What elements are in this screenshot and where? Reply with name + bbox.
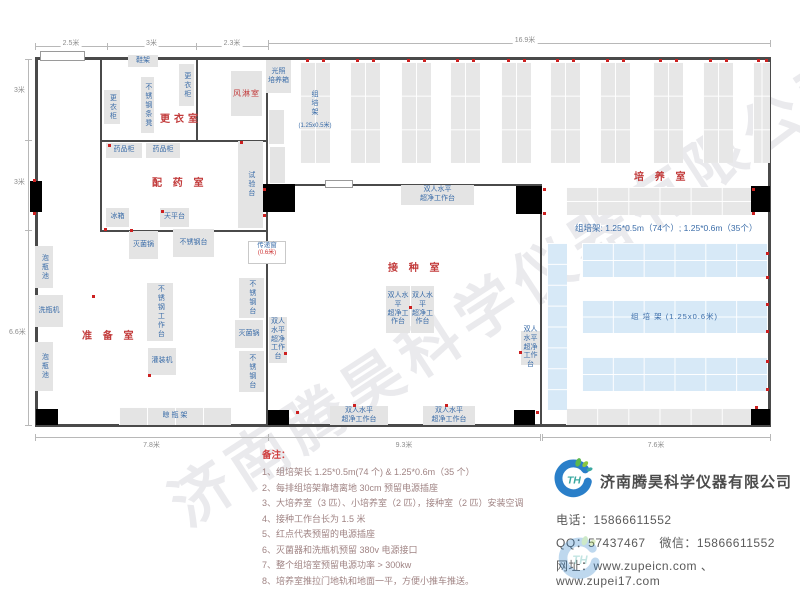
blue-culture-rack <box>582 357 767 391</box>
power-outlet-dot <box>407 59 410 62</box>
dim-label: 16.9米 <box>513 35 538 45</box>
dim-tick <box>25 140 32 141</box>
culture-rack <box>401 62 431 163</box>
room-label: 准 备 室 <box>82 327 138 342</box>
room-label: 接 种 室 <box>388 259 444 274</box>
equipment-box <box>270 147 285 183</box>
dim-tick <box>196 43 197 50</box>
door-block <box>516 186 542 214</box>
dim-tick <box>542 434 543 441</box>
note-item: 1、组培架长 1.25*0.5m(74 个) & 1.25*0.6m（35 个） <box>262 465 542 481</box>
equipment-box: 双人水平 超净工作台 <box>401 185 474 205</box>
door-block <box>30 181 42 212</box>
power-outlet-dot <box>445 404 448 407</box>
notes-block: 备注： 1、组培架长 1.25*0.5m(74 个) & 1.25*0.6m（3… <box>262 447 542 589</box>
power-outlet-dot <box>372 59 375 62</box>
culture-rack <box>550 62 580 163</box>
screenshot-canvas: 济南腾昊科学仪器有限公司 组 培 架 (1.25x0.6米)鞋架更衣柜不锈钢条凳… <box>0 0 800 600</box>
note-item: 6、灭菌器和洗瓶机预留 380v 电源接口 <box>262 543 542 559</box>
culture-rack <box>703 62 733 163</box>
equipment-box: 灭菌锅 <box>235 320 263 348</box>
equipment-box: 不锈钢台 <box>173 229 214 257</box>
window-marker <box>325 180 353 188</box>
equipment-box: 灭菌锅 <box>129 231 158 259</box>
equipment-box: 不锈钢条凳 <box>141 77 154 133</box>
dim-tick <box>35 434 36 441</box>
power-outlet-dot <box>766 330 769 333</box>
power-outlet-dot <box>161 210 164 213</box>
note-item: 8、培养室推拉门地轨和地面一平，方便小推车推送。 <box>262 574 542 590</box>
svg-text:TH: TH <box>572 555 588 567</box>
power-outlet-dot <box>423 59 426 62</box>
power-outlet-dot <box>757 59 760 62</box>
wechat-label: 微信： <box>659 536 697 550</box>
culture-rack <box>450 62 480 163</box>
equipment-box: 不锈钢工作台 <box>147 283 173 341</box>
dim-label: 6.6米 <box>7 327 28 337</box>
dim-tick <box>770 40 771 47</box>
dim-line <box>28 230 29 425</box>
culture-rack <box>566 187 753 215</box>
door-block <box>263 184 295 212</box>
wechat-value: 15866611552 <box>697 536 775 550</box>
equipment-box: 双人水平 超净工作台 <box>521 331 540 365</box>
power-outlet-dot <box>675 59 678 62</box>
power-outlet-dot <box>766 360 769 363</box>
dim-tick <box>107 43 108 50</box>
dim-tick <box>35 43 36 50</box>
power-outlet-dot <box>752 212 755 215</box>
room-label: 培 养 室 <box>634 168 690 183</box>
power-outlet-dot <box>766 303 769 306</box>
dim-label: 7.8米 <box>141 440 162 450</box>
company-logo-icon: TH <box>552 458 594 505</box>
power-outlet-dot <box>456 59 459 62</box>
rack-size-sublabel: (1.25x0.5米) <box>292 120 338 129</box>
power-outlet-dot <box>752 188 755 191</box>
power-outlet-dot <box>148 374 151 377</box>
rack-spec-label: 组培架: 1.25*0.5m（74个）; 1.25*0.6m（35个） <box>575 222 757 234</box>
dim-line <box>28 140 29 230</box>
power-outlet-dot <box>572 59 575 62</box>
equipment-box: 双人水平 超净工作台 <box>269 317 287 363</box>
notes-list: 1、组培架长 1.25*0.5m(74 个) & 1.25*0.6m（35 个）… <box>262 465 542 589</box>
power-outlet-dot <box>284 352 287 355</box>
equipment-box: 不锈钢台 <box>239 278 264 318</box>
wall <box>196 59 198 141</box>
power-outlet-dot <box>240 141 243 144</box>
floor-plan: 组 培 架 (1.25x0.6米)鞋架更衣柜不锈钢条凳更衣柜风淋室光照 培养箱药… <box>0 0 800 450</box>
dim-label: 3米 <box>12 85 27 95</box>
note-item: 5、红点代表预留的电源插座 <box>262 527 542 543</box>
power-outlet-dot <box>130 229 133 232</box>
dim-tick <box>25 230 32 231</box>
notes-header: 备注： <box>262 447 542 461</box>
transfer-window: 传递窗(0.6米) <box>248 241 286 264</box>
power-outlet-dot <box>765 59 768 62</box>
blue-culture-rack <box>547 243 567 410</box>
culture-rack <box>753 62 770 163</box>
power-outlet-dot <box>766 388 769 391</box>
equipment-box: 光照 培养箱 <box>266 60 291 93</box>
door-block <box>268 410 289 425</box>
equipment-box: 双人水平 超净工作台 <box>386 286 410 333</box>
dim-line <box>268 437 540 438</box>
power-outlet-dot <box>523 59 526 62</box>
dim-line <box>35 437 268 438</box>
equipment-box: 泡瓶池 <box>35 246 53 288</box>
room-label: 配 药 室 <box>152 174 208 189</box>
power-outlet-dot <box>766 276 769 279</box>
dim-label: 3米 <box>144 38 159 48</box>
equipment-box: 洗瓶机 <box>35 295 63 327</box>
equipment-box: 双人水平 超净工作台 <box>411 286 434 333</box>
power-outlet-dot <box>33 179 36 182</box>
culture-rack <box>600 62 630 163</box>
equipment-box: 药品柜 <box>146 143 180 158</box>
power-outlet-dot <box>353 404 356 407</box>
culture-rack <box>350 62 380 163</box>
phone-value: 15866611552 <box>594 513 672 527</box>
note-item: 4、接种工作台长为 1.5 米 <box>262 512 542 528</box>
power-outlet-dot <box>108 144 111 147</box>
equipment-box: 风淋室 <box>231 71 262 116</box>
power-outlet-dot <box>472 59 475 62</box>
power-outlet-dot <box>92 295 95 298</box>
window-marker <box>40 51 85 61</box>
dim-label: 7.6米 <box>646 440 667 450</box>
dim-tick <box>268 40 269 47</box>
dim-label: 3米 <box>12 177 27 187</box>
power-outlet-dot <box>263 188 266 191</box>
equipment-box: 鞋架 <box>128 55 158 67</box>
equipment-box: 更衣柜 <box>179 64 194 106</box>
equipment-box: 冰箱 <box>106 208 129 227</box>
equipment-box: 双人水平 超净工作台 <box>423 406 475 425</box>
dim-tick <box>25 59 32 60</box>
power-outlet-dot <box>543 188 546 191</box>
wall <box>540 184 542 425</box>
power-outlet-dot <box>543 212 546 215</box>
power-outlet-dot <box>556 59 559 62</box>
dim-tick <box>268 434 269 441</box>
dim-tick <box>25 425 32 426</box>
power-outlet-dot <box>725 59 728 62</box>
equipment-box: 泡瓶池 <box>35 342 53 391</box>
culture-rack <box>501 62 531 163</box>
culture-rack <box>566 408 753 425</box>
power-outlet-dot <box>766 252 769 255</box>
power-outlet-dot <box>356 59 359 62</box>
dim-line <box>28 59 29 140</box>
equipment-box: 药品柜 <box>106 143 142 158</box>
power-outlet-dot <box>622 59 625 62</box>
door-block <box>751 409 770 425</box>
power-outlet-dot <box>296 411 299 414</box>
door-block <box>36 409 58 425</box>
note-item: 2、每排组培架靠墙离地 30cm 预留电源插座 <box>262 481 542 497</box>
room-label: 更衣室 <box>160 110 202 125</box>
dim-label: 2.5米 <box>61 38 82 48</box>
power-outlet-dot <box>507 59 510 62</box>
equipment-box: 双人水平 超净工作台 <box>330 406 388 425</box>
equipment-box <box>269 110 284 144</box>
power-outlet-dot <box>659 59 662 62</box>
power-outlet-dot <box>306 59 309 62</box>
equipment-box: 更衣柜 <box>104 90 120 124</box>
power-outlet-dot <box>709 59 712 62</box>
dim-line <box>542 437 770 438</box>
power-outlet-dot <box>33 212 36 215</box>
culture-rack <box>653 62 683 163</box>
power-outlet-dot <box>104 228 107 231</box>
equipment-box: 试验台 <box>238 141 263 228</box>
power-outlet-dot <box>322 59 325 62</box>
company-phone-line: 电话：15866611552 <box>556 511 792 528</box>
note-item: 7、整个组培室预留电源功率 > 300kw <box>262 558 542 574</box>
dim-tick <box>770 434 771 441</box>
door-block <box>514 410 535 425</box>
equipment-box: 灌装机 <box>148 348 176 375</box>
blue-culture-rack: 组 培 架 (1.25x0.6米) <box>582 300 767 333</box>
power-outlet-dot <box>519 351 522 354</box>
equipment-box: 天平台 <box>160 208 189 227</box>
company-name: 济南腾昊科学仪器有限公司 <box>600 471 792 492</box>
wall <box>100 59 102 232</box>
power-outlet-dot <box>755 406 758 409</box>
equipment-box: 晾 瓶 架 <box>119 407 231 425</box>
power-outlet-dot <box>606 59 609 62</box>
power-outlet-dot <box>263 214 266 217</box>
note-item: 3、大培养室（3 匹）、小培养室（2 匹），接种室（2 匹）安装空调 <box>262 496 542 512</box>
equipment-box: 不锈钢台 <box>239 351 264 392</box>
svg-text:TH: TH <box>567 474 581 486</box>
blue-culture-rack <box>582 243 767 277</box>
dim-tick <box>540 434 541 441</box>
logo-watermark-icon: TH <box>556 536 602 587</box>
phone-label: 电话： <box>556 513 594 527</box>
power-outlet-dot <box>409 306 412 309</box>
dim-label: 2.3米 <box>222 38 243 48</box>
power-outlet-dot <box>536 411 539 414</box>
transfer-window-size: (0.6米) <box>249 250 285 258</box>
rack-size-label: 组 培 架 <box>296 90 334 117</box>
